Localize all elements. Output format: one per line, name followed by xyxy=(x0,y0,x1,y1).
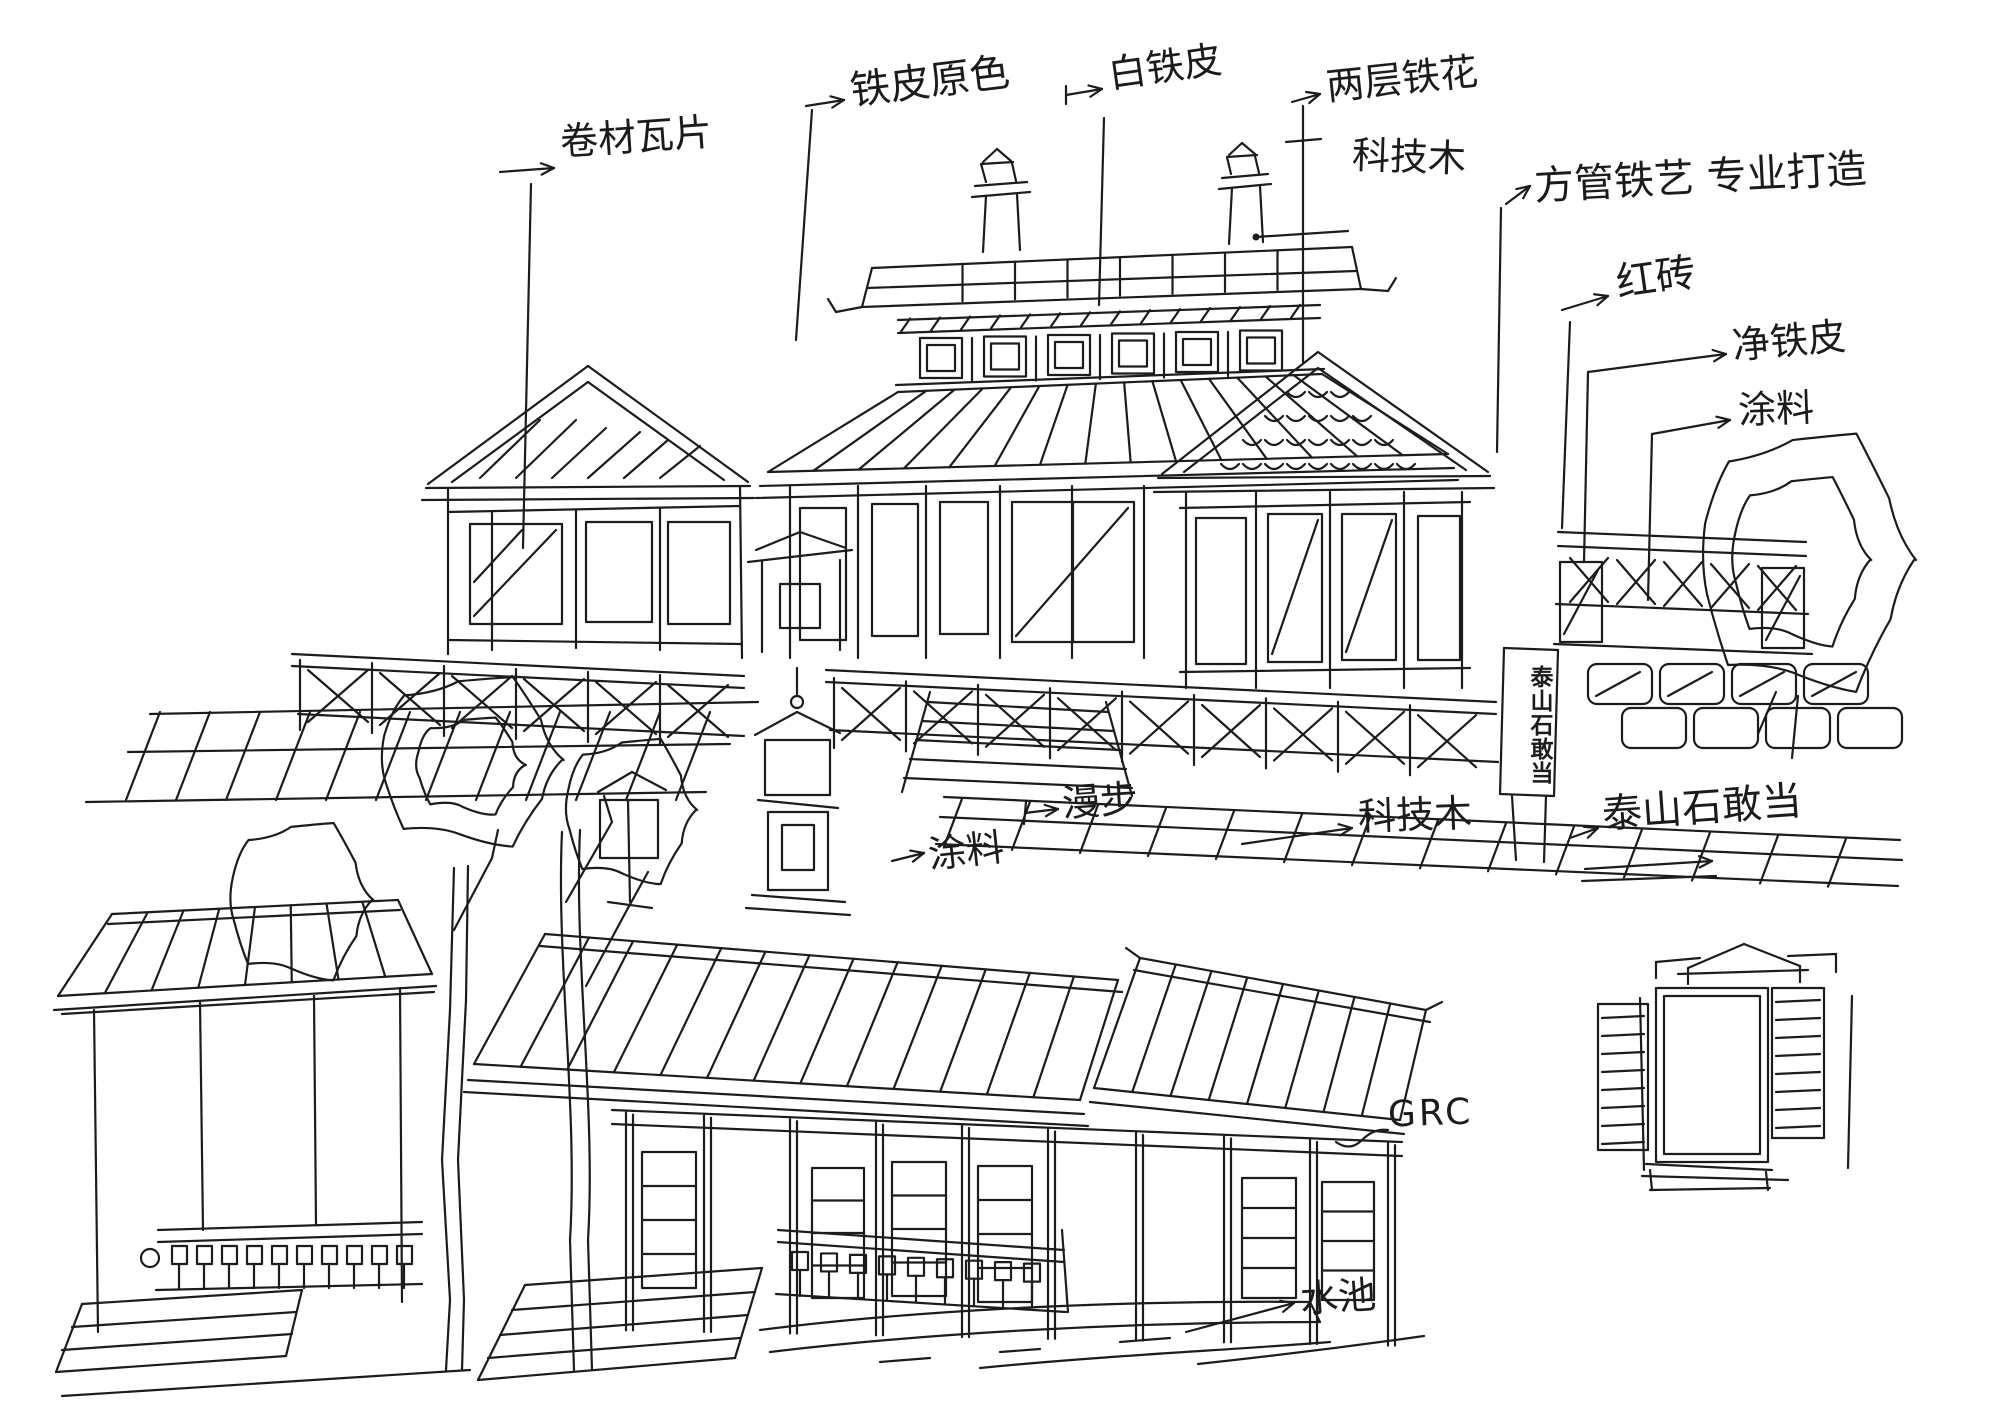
taishan-stone-sign: 泰山石敢当 xyxy=(1506,656,1556,794)
annotation-red-brick: 红砖 xyxy=(1614,253,1699,304)
annotation-tech-wood-upper: 科技木 xyxy=(1351,136,1466,178)
annotation-coating-center: 涂料 xyxy=(926,828,1006,874)
upper-building-sketch xyxy=(292,143,1902,862)
window-detail-sketch xyxy=(1598,944,1852,1190)
annotation-tech-wood-lower: 科技木 xyxy=(1357,794,1472,836)
annotation-stroll-path: 漫步 xyxy=(1061,779,1139,822)
sketch-drawing xyxy=(0,0,2000,1414)
annotation-rolled-tile: 卷材瓦片 xyxy=(559,113,713,162)
annotation-clean-iron-sheet: 净铁皮 xyxy=(1731,317,1848,365)
sketch-page: 卷材瓦片 铁皮原色 白铁皮 两层铁花 科技木 方管铁艺 专业打造 红砖 净铁皮 … xyxy=(0,0,2000,1414)
annotation-coating-right: 涂料 xyxy=(1737,389,1814,430)
annotation-water-pool: 水池 xyxy=(1299,1275,1377,1318)
annotation-grc: GRC xyxy=(1387,1095,1473,1134)
lower-building-sketch xyxy=(54,900,1442,1380)
